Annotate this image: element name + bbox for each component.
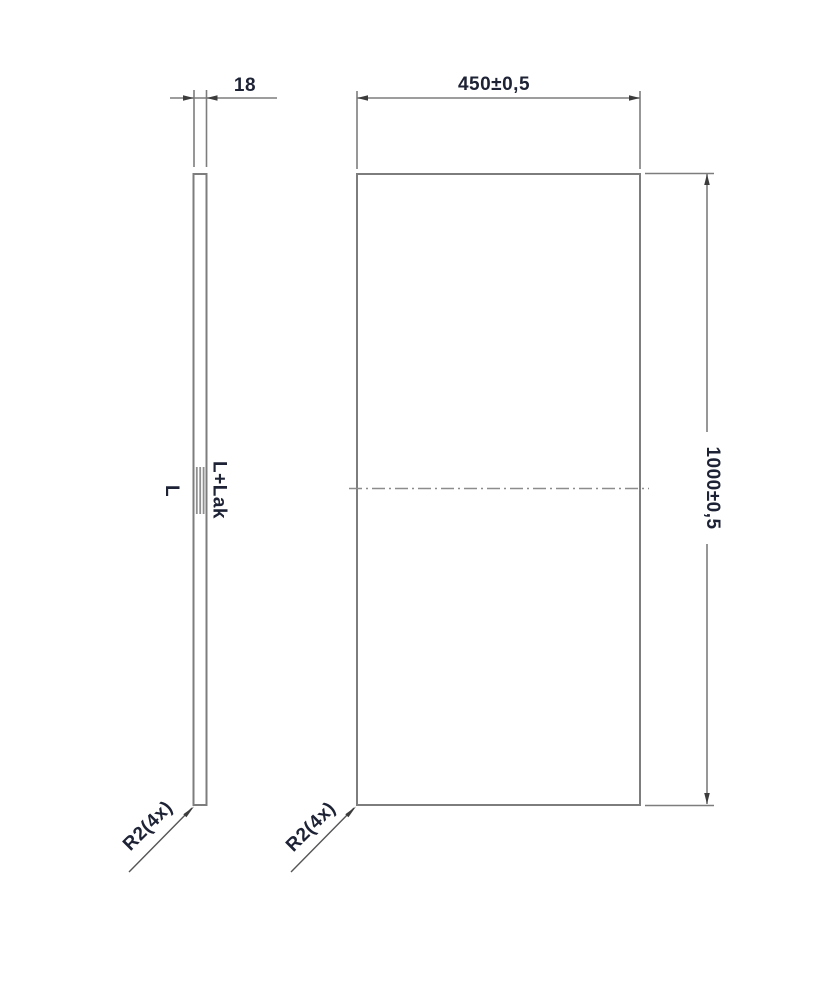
finish-left-label: L: [161, 485, 182, 497]
arrowhead-icon: [629, 95, 640, 101]
arrowhead-icon: [345, 807, 356, 818]
arrowhead-icon: [183, 95, 194, 101]
panel-front-outline: [357, 174, 640, 805]
arrowhead-icon: [183, 807, 194, 818]
height-dimension-label: 1000±0,5: [702, 446, 723, 529]
panel-drawing: 18 L L+Lak R2(4x): [0, 0, 824, 1000]
finish-right-label: L+Lak: [209, 461, 230, 519]
arrowhead-icon: [704, 174, 710, 185]
front-view-radius-label: R2(4x): [282, 798, 340, 856]
side-view: 18 L L+Lak R2(4x): [119, 75, 277, 872]
arrowhead-icon: [704, 793, 710, 804]
side-view-radius-label: R2(4x): [119, 797, 177, 855]
technical-drawing-canvas: 18 L L+Lak R2(4x): [0, 0, 824, 1000]
thickness-dimension-label: 18: [234, 75, 256, 96]
front-view: 450±0,5 1000±0,5 R2(4x): [282, 74, 734, 872]
arrowhead-icon: [357, 95, 368, 101]
arrowhead-icon: [207, 95, 218, 101]
width-dimension-label: 450±0,5: [458, 74, 530, 95]
